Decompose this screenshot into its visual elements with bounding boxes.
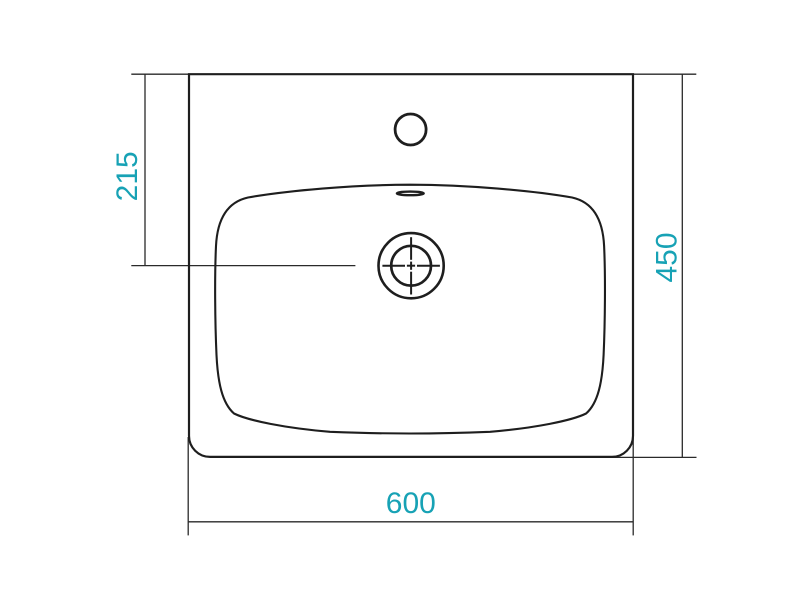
svg-text:215: 215 [111, 151, 144, 201]
svg-text:600: 600 [386, 487, 436, 520]
svg-text:450: 450 [651, 232, 684, 282]
